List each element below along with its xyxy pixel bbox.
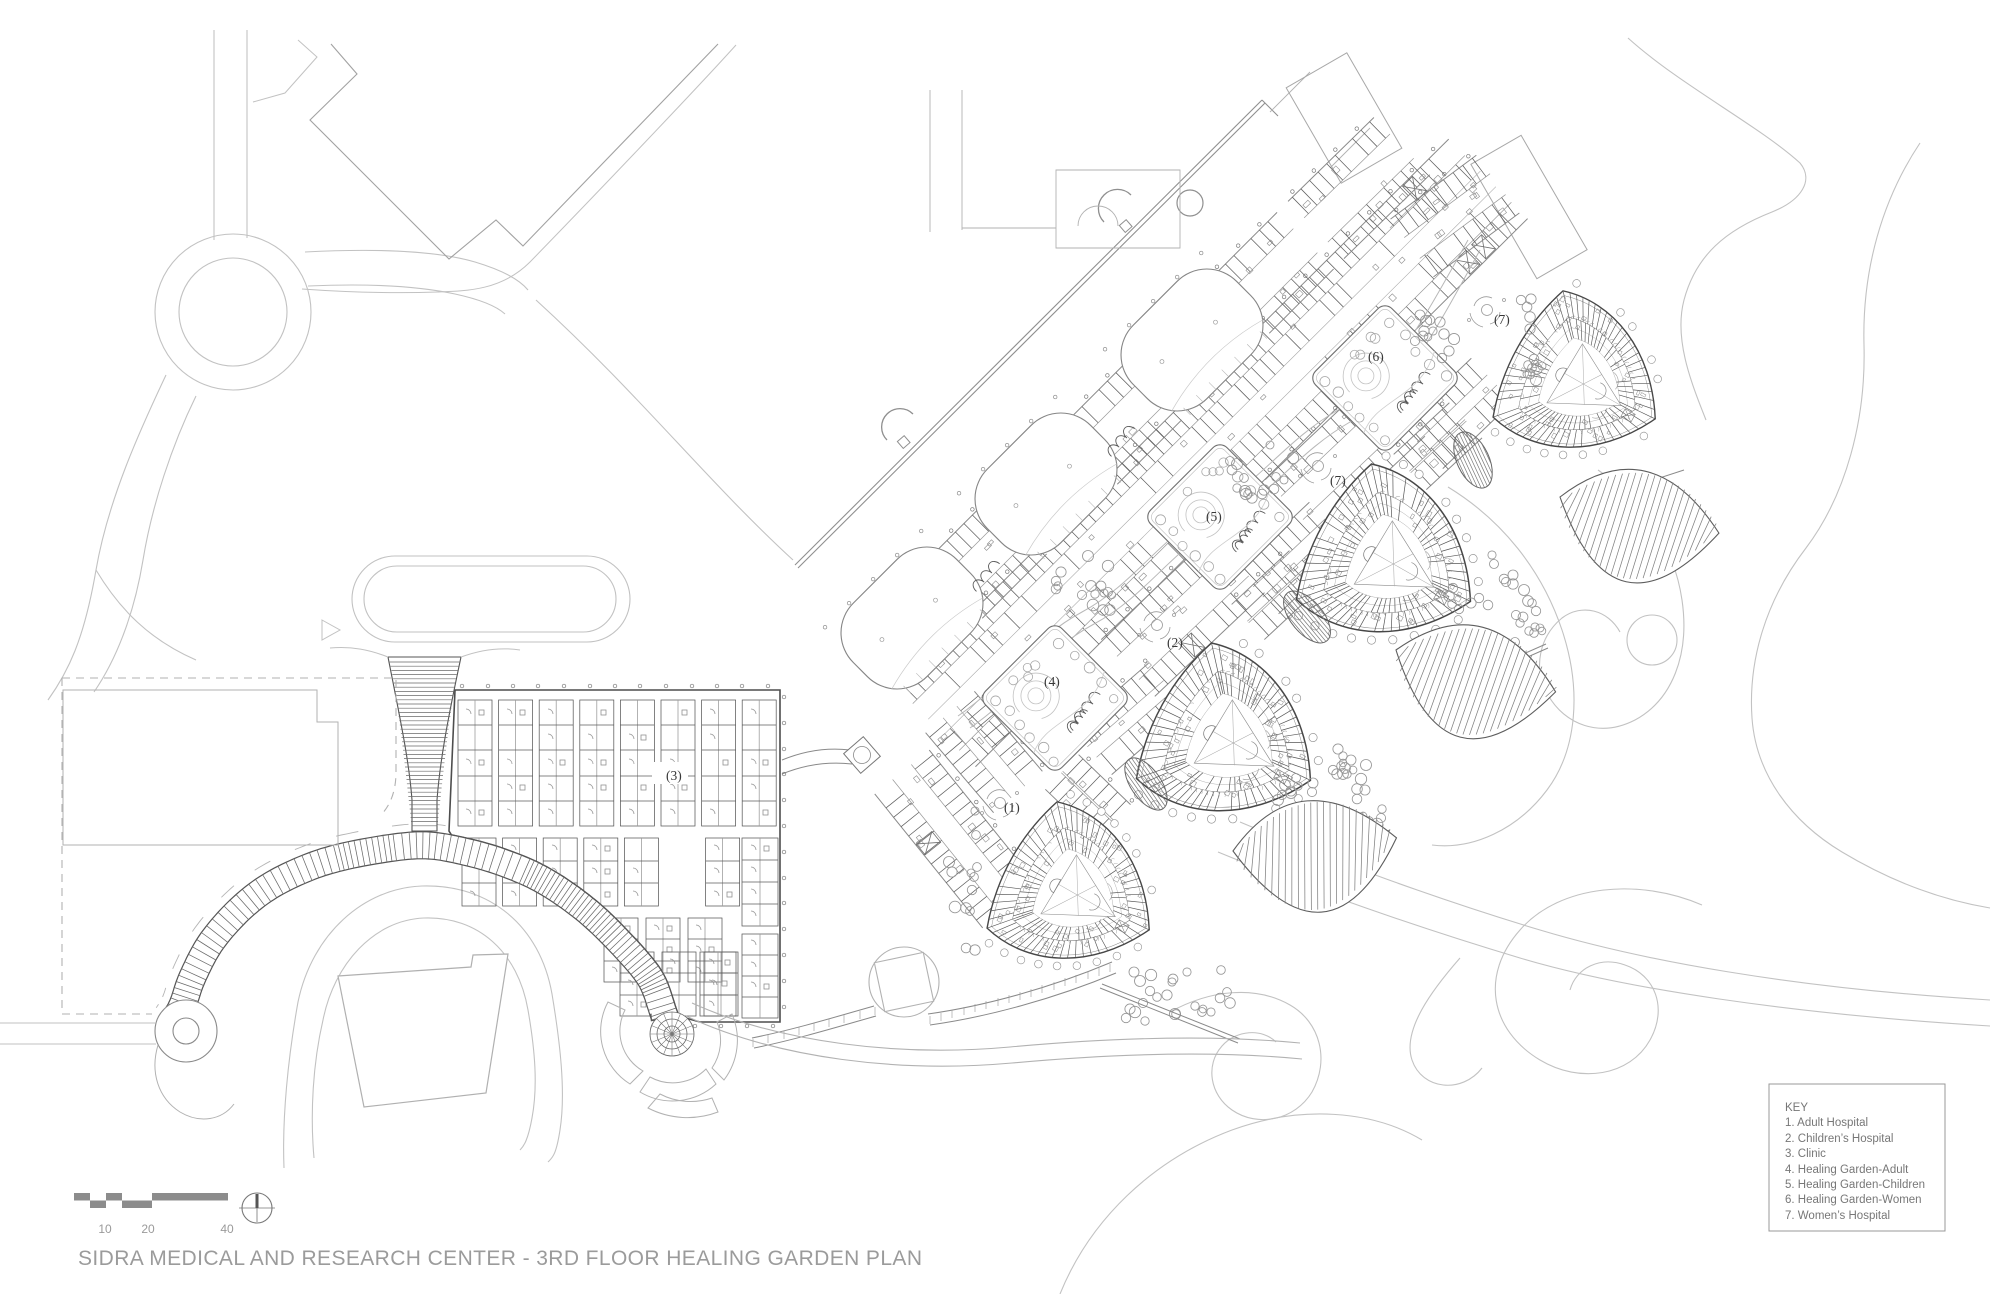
svg-text:40: 40: [220, 1222, 234, 1236]
svg-text:(7): (7): [1330, 473, 1346, 488]
svg-text:SIDRA MEDICAL AND RESEARCH CEN: SIDRA MEDICAL AND RESEARCH CENTER - 3RD …: [78, 1247, 922, 1270]
svg-text:(6): (6): [1368, 349, 1384, 364]
svg-text:(5): (5): [1206, 509, 1222, 524]
svg-text:(7): (7): [1494, 312, 1510, 327]
svg-text:(4): (4): [1044, 674, 1060, 689]
svg-text:10: 10: [98, 1222, 112, 1236]
svg-text:7. Women’s Hospital: 7. Women’s Hospital: [1785, 1210, 1890, 1222]
svg-text:20: 20: [141, 1222, 155, 1236]
svg-text:4. Healing Garden-Adult: 4. Healing Garden-Adult: [1785, 1164, 1909, 1176]
svg-text:5. Healing Garden-Children: 5. Healing Garden-Children: [1785, 1179, 1925, 1191]
svg-text:(1): (1): [1004, 800, 1020, 815]
svg-text:(3): (3): [666, 768, 682, 783]
svg-text:1. Adult Hospital: 1. Adult Hospital: [1785, 1117, 1868, 1129]
svg-text:KEY: KEY: [1785, 1102, 1808, 1114]
svg-text:(2): (2): [1167, 635, 1183, 650]
svg-text:6. Healing Garden-Women: 6. Healing Garden-Women: [1785, 1194, 1922, 1206]
svg-text:2. Children’s Hospital: 2. Children’s Hospital: [1785, 1133, 1893, 1145]
svg-text:3. Clinic: 3. Clinic: [1785, 1148, 1826, 1160]
